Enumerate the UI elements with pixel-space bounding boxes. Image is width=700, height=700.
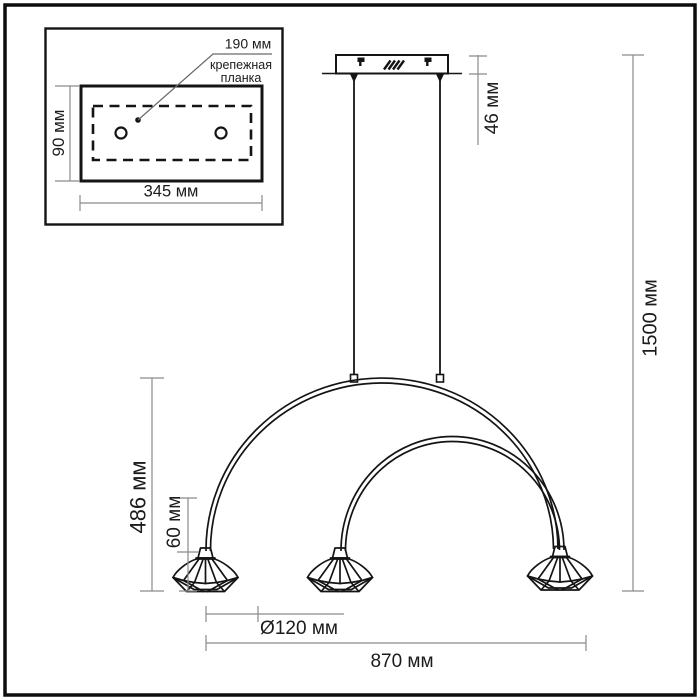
suspension-wires <box>350 73 445 382</box>
lamp-technical-drawing <box>0 0 700 700</box>
technical-drawing-page: 190 мм крепежная планка 90 мм 345 мм 46 … <box>0 0 700 700</box>
shade-left <box>173 548 238 592</box>
dim-486-label: 486 мм <box>126 460 149 533</box>
lamp-elevation <box>173 55 593 592</box>
dim-46-label: 46 мм <box>483 82 503 135</box>
dim-d120-label: Ø120 мм <box>260 619 338 639</box>
small-arch <box>341 436 564 551</box>
dim-90-label: 90 мм <box>50 109 68 156</box>
bracket-label-line2: планка <box>210 72 272 85</box>
dim-1500-label: 1500 мм <box>641 279 662 357</box>
mounting-hole-left <box>116 128 127 139</box>
dim-870-label: 870 мм <box>370 652 433 672</box>
bracket-label: крепежная планка <box>210 59 272 85</box>
wire-connector-right <box>437 375 444 383</box>
large-arch <box>206 378 558 551</box>
dim-60-label: 60 мм <box>165 496 185 549</box>
dim-345-label: 345 мм <box>144 183 199 200</box>
shade-middle <box>308 548 373 592</box>
canopy-hatch-mark <box>384 61 404 70</box>
dim-190-label: 190 мм <box>225 37 272 52</box>
wire-flare-right <box>436 73 445 83</box>
wire-flare-left <box>350 73 359 83</box>
shade-right <box>528 547 593 591</box>
plate-outline <box>81 86 262 181</box>
dimension-lines <box>140 55 644 651</box>
mounting-hole-right <box>216 128 227 139</box>
